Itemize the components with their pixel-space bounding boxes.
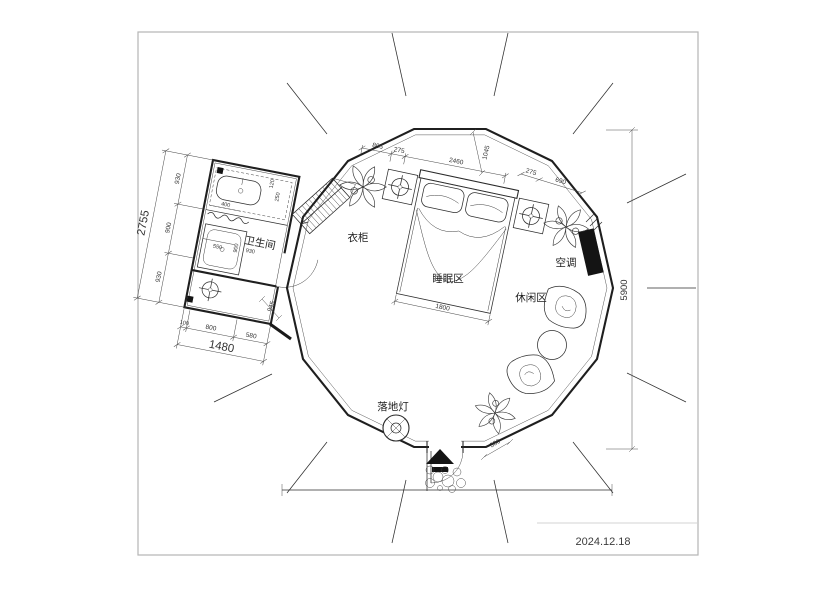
floor-lamp-label: 落地灯 [377, 400, 409, 413]
dim-top-275: 275 [393, 146, 405, 155]
wall-post [187, 296, 194, 303]
bathroom-block: 400 550 900 930 120 250 卫生间 930 900 930 … [116, 145, 334, 371]
leisure-area-label: 休闲区 [515, 291, 547, 304]
entrance-door [427, 440, 463, 491]
dim-bottom-800: 800 [205, 324, 217, 333]
mattress [396, 178, 514, 313]
sleeping-area-label: 睡眠区 [432, 272, 464, 285]
dim-top-1045: 1045 [482, 144, 492, 160]
dim-left-930b: 930 [155, 271, 164, 283]
wardrobe-label: 衣柜 [348, 231, 369, 244]
nightstand-right [513, 198, 549, 234]
dim-bottom-580: 580 [245, 332, 257, 341]
dim-left-930a: 930 [174, 172, 183, 184]
dim-380-group: 380 [481, 438, 513, 460]
floor-lamp-symbol [383, 415, 409, 441]
dim-5900-group: 5900 [606, 127, 638, 452]
air-conditioner-label: 空调 [556, 256, 577, 269]
wall-post [217, 167, 224, 174]
lounge-chair [540, 283, 590, 331]
floorplan-canvas: 400 550 900 930 120 250 卫生间 930 900 930 … [0, 0, 837, 592]
dim-1045-group: 1045 [470, 129, 491, 176]
dim-height-5900: 5900 [619, 279, 630, 300]
dim-left-900: 900 [164, 221, 173, 233]
dim-bottom-total-1480: 1480 [208, 339, 235, 356]
floorplan-drawing: 400 550 900 930 120 250 卫生间 930 900 930 … [0, 0, 837, 592]
round-table [538, 331, 567, 360]
air-conditioner-unit [578, 228, 604, 275]
drawing-date: 2024.12.18 [575, 536, 630, 548]
wall-stub [270, 324, 291, 339]
ground-line [282, 484, 612, 496]
nightstand-left [382, 169, 418, 205]
